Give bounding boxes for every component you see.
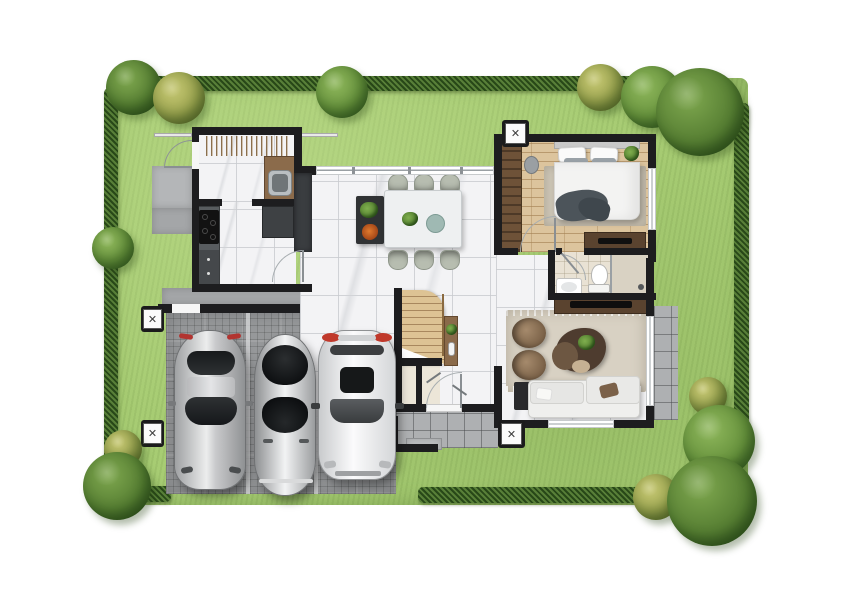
- shower-floor: [612, 252, 648, 298]
- chrome-bumper: [259, 479, 313, 483]
- rear-window: [330, 345, 384, 355]
- bedroom-window: [648, 168, 656, 230]
- windshield: [262, 397, 308, 433]
- ac-unit: ✕: [141, 306, 164, 332]
- side-mirror: [168, 401, 176, 406]
- side-mirror: [395, 403, 404, 409]
- ac-fan-icon: ✕: [143, 423, 162, 444]
- large-tree-top-right-corner: [656, 68, 744, 156]
- rear-window: [262, 345, 308, 385]
- large-tree-bottom-right-corner: [667, 456, 757, 546]
- window-mullion: [408, 167, 411, 174]
- burner: [210, 234, 216, 240]
- bedroom-door-leaf: [554, 218, 556, 252]
- sofa-pillow: [535, 387, 553, 401]
- armchair: [512, 318, 546, 348]
- wall-bathroom-bottom: [548, 293, 656, 300]
- cabinet-knob: [207, 272, 210, 275]
- dining-table: [384, 190, 462, 248]
- tree-left-middle: [92, 227, 134, 269]
- armchair: [512, 350, 546, 380]
- laundry-sink-basin: [272, 174, 288, 192]
- hedge-right: [734, 103, 749, 455]
- wall-living-bottom: [614, 420, 654, 428]
- wall-laundry-kitchen-divider: [252, 199, 296, 206]
- sunroof: [340, 367, 374, 393]
- headlight: [379, 460, 392, 469]
- hedge-left: [104, 88, 118, 484]
- wall-kitchen-bottom: [192, 284, 312, 292]
- terrace: [654, 306, 678, 420]
- side-mirror: [311, 403, 320, 409]
- windshield: [185, 397, 237, 425]
- corner-tree-top-left: [106, 60, 161, 115]
- living-window: [548, 420, 614, 428]
- burner: [202, 214, 208, 220]
- refrigerator: [262, 206, 294, 238]
- silver-classic-car: [254, 334, 316, 496]
- tv: [570, 301, 632, 308]
- rear-spoiler: [338, 335, 376, 341]
- clothesline-rail-right: [298, 133, 338, 137]
- yellow-tree-top-right: [577, 64, 624, 111]
- headlight: [229, 466, 242, 474]
- window-mullion: [460, 167, 463, 174]
- kitchen-lower-cabinet: [199, 250, 219, 284]
- side-patio-upper: [152, 166, 192, 208]
- wall-laundry-left: [192, 127, 199, 142]
- hanging-clothes-rack: [206, 136, 290, 156]
- headlight: [324, 460, 337, 469]
- white-suv: [318, 330, 396, 480]
- windshield: [330, 399, 384, 423]
- closet-divider-wall: [416, 366, 422, 406]
- car-roof: [187, 377, 235, 397]
- sink-basin: [561, 282, 577, 292]
- shower-drain: [638, 284, 644, 290]
- ac-fan-icon: ✕: [501, 423, 522, 445]
- window-mullion: [352, 167, 355, 174]
- table-tray: [426, 214, 445, 233]
- wall-under-stair: [394, 358, 442, 366]
- ac-unit: ✕: [141, 420, 164, 447]
- wall-bedroom-left: [494, 134, 502, 255]
- hood-vent: [299, 439, 309, 443]
- wardrobe: [500, 140, 522, 252]
- wall-laundry-top: [192, 127, 302, 135]
- wall-living-west: [494, 366, 502, 428]
- bedroom-tv: [598, 238, 632, 244]
- walkway-gate-opening: [172, 304, 200, 313]
- wall-bedroom-bottom: [584, 248, 656, 255]
- toilet-bowl: [591, 264, 608, 286]
- kitchen-door-leaf: [302, 250, 304, 282]
- toilet-tank: [588, 284, 610, 293]
- laundry-door-leaf: [164, 166, 192, 168]
- floor-plan-scene: ✕ ✕ ✕ ✕: [0, 0, 842, 595]
- wall-hall-south: [462, 404, 502, 412]
- ac-unit: ✕: [498, 420, 525, 448]
- red-roof-rail: [374, 333, 392, 342]
- ac-fan-icon: ✕: [143, 309, 162, 330]
- dining-chair: [388, 250, 408, 270]
- pantry-cabinet-wall: [294, 173, 312, 252]
- headlight: [181, 466, 194, 474]
- living-sliding-door: [646, 316, 654, 406]
- side-patio-lower: [152, 208, 192, 234]
- yellow-tree-top-left: [153, 72, 205, 124]
- wall-laundry-kitchen-divider: [198, 199, 222, 206]
- burner: [202, 228, 208, 234]
- wall-bedroom-right: [648, 134, 656, 168]
- ac-unit: ✕: [502, 120, 529, 147]
- rear-window: [187, 351, 235, 375]
- console-vase: [448, 342, 455, 356]
- wall-bedroom-bottom: [494, 248, 518, 255]
- laundry-patio-door-opening: [192, 142, 199, 169]
- dining-chair: [414, 250, 434, 270]
- vanity-chair: [524, 156, 539, 174]
- shower-glass: [610, 252, 612, 298]
- tree-top-middle: [316, 66, 368, 118]
- hood-vent: [263, 439, 273, 443]
- dining-window: [316, 166, 494, 175]
- side-mirror: [245, 401, 253, 406]
- clothesline-rail-left: [154, 133, 192, 137]
- wall-kitchen-left: [192, 169, 199, 292]
- dining-chair: [440, 250, 460, 270]
- porch-wall-south: [390, 444, 438, 452]
- burner: [210, 220, 216, 226]
- wall-living-east: [646, 258, 654, 316]
- tree-bottom-left-corner: [83, 452, 151, 520]
- silver-sports-car: [174, 330, 246, 490]
- coffee-table-stone: [572, 360, 590, 373]
- ac-fan-icon: ✕: [505, 123, 526, 144]
- front-grille: [335, 471, 381, 476]
- cabinet-knob: [207, 258, 210, 261]
